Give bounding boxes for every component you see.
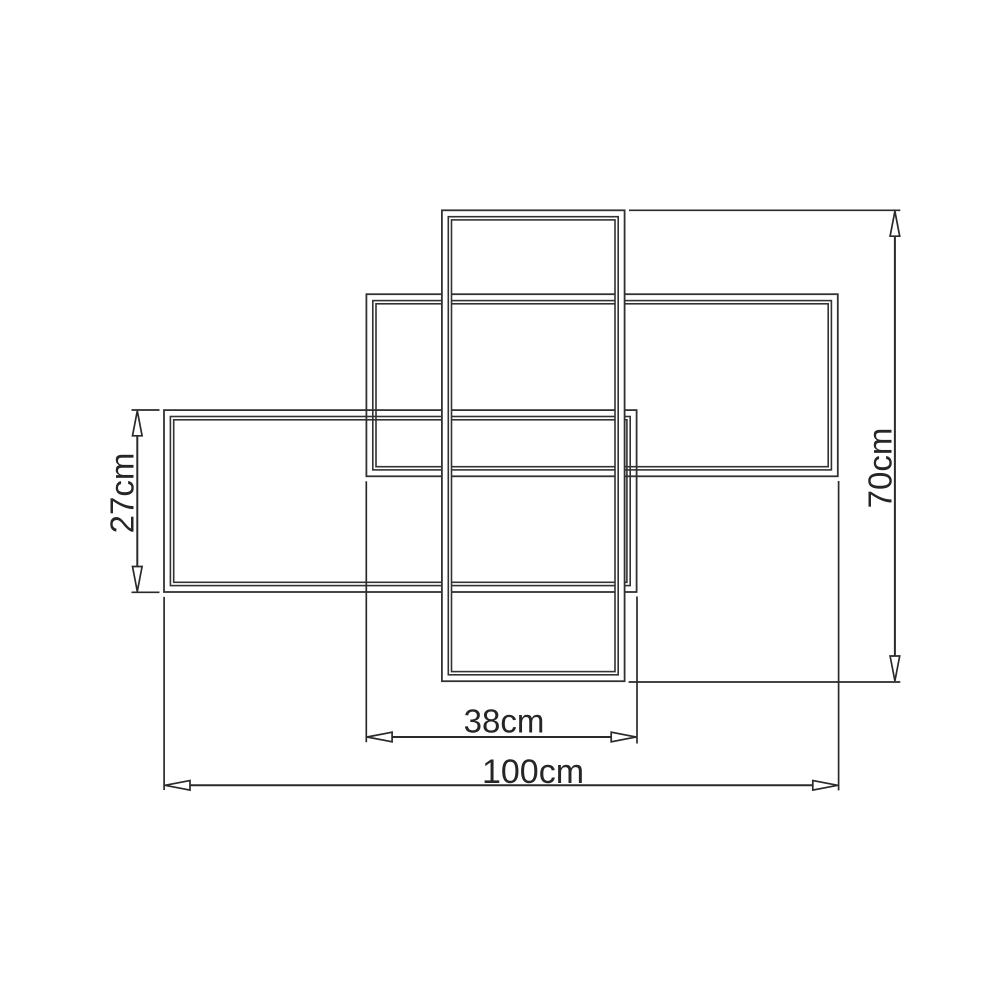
svg-text:70cm: 70cm bbox=[862, 428, 899, 509]
svg-text:100cm: 100cm bbox=[482, 753, 584, 791]
svg-text:27cm: 27cm bbox=[104, 453, 141, 534]
svg-text:38cm: 38cm bbox=[464, 703, 545, 740]
